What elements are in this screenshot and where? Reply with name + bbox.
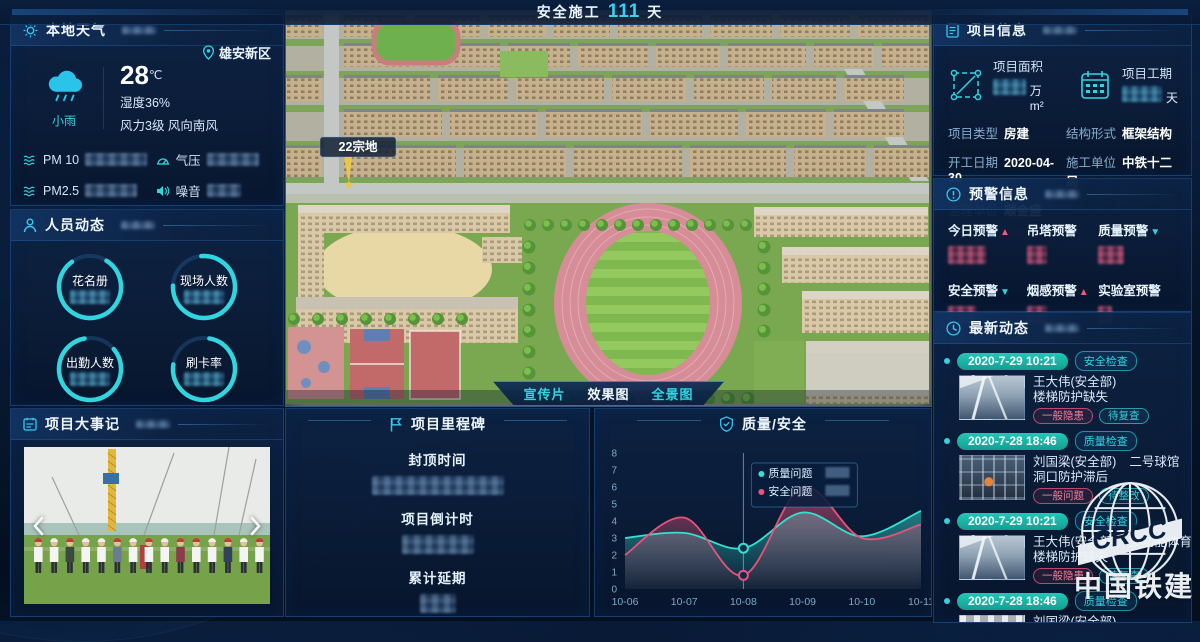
location-chip: 雄安新区 — [202, 43, 271, 62]
events-title: 项目大事记 — [45, 414, 120, 434]
redacted-value — [993, 79, 1026, 95]
svg-text:6: 6 — [611, 483, 617, 494]
redacted-value — [1098, 246, 1124, 264]
area-measure-icon — [948, 67, 984, 103]
view-mode-tabs: 宣传片 效果图 全景图 — [493, 381, 725, 405]
milestone-topping-time: 封顶时间 — [372, 449, 504, 495]
milestone-photo — [24, 447, 270, 604]
events-header: 项目大事记 — [11, 409, 283, 440]
personnel-title: 人员动态 — [45, 215, 105, 235]
inspector-name: 刘国梁(安全部) — [1033, 455, 1116, 469]
entry-time: 2020-7-28 18:46 — [957, 593, 1068, 610]
entry-time: 2020-7-29 10:21 — [957, 353, 1068, 370]
entry-type-badge: 质量检查 — [1075, 431, 1137, 451]
entry-time: 2020-7-29 10:21 — [957, 513, 1068, 530]
entry-time: 2020-7-28 18:46 — [957, 433, 1068, 450]
tab-promo-video[interactable]: 宣传片 — [523, 384, 565, 403]
bullet-icon — [944, 438, 950, 444]
gauge-onsite-count: 现场人数 — [168, 251, 240, 323]
redacted-text — [122, 26, 156, 34]
milestone-delay: 累计延期 — [409, 567, 467, 613]
severity-tag: 一般隐患 — [1033, 408, 1093, 424]
svg-text:10-06: 10-06 — [612, 596, 639, 608]
svg-text:7: 7 — [611, 466, 617, 477]
redacted-text — [1045, 190, 1079, 198]
location-pin-icon — [202, 45, 215, 60]
redacted-text — [121, 221, 155, 229]
svg-text:10-11: 10-11 — [908, 596, 931, 608]
location-label: 雄安新区 — [219, 43, 271, 62]
speaker-icon — [156, 185, 170, 197]
entry-location: 多功能体育馆 — [1129, 535, 1192, 549]
title-suffix: 天 — [647, 0, 663, 24]
stat-project-area: 项目面积 万m² — [948, 56, 1051, 113]
trend-down-icon: ▼ — [1150, 227, 1160, 238]
redacted-value — [207, 153, 259, 166]
issue-text: 洞口防护滞后 — [1033, 470, 1181, 485]
inspector-name: 王大伟(安全部) — [1033, 375, 1116, 389]
svg-text:3: 3 — [611, 534, 617, 545]
metric-pm25: PM2.5 — [23, 181, 156, 200]
severity-tag: 一般隐患 — [1033, 568, 1093, 584]
quality-safety-chart[interactable]: 01234567810-0610-0710-0810-0910-1010-11质… — [595, 441, 931, 613]
trend-down-icon: ▼ — [1000, 287, 1010, 298]
svg-text:安全问题: 安全问题 — [768, 484, 812, 498]
rain-cloud-icon — [41, 67, 87, 105]
svg-text:10-09: 10-09 — [789, 596, 816, 608]
entry-type-badge: 质量检查 — [1075, 591, 1137, 611]
humidity: 湿度36% — [120, 92, 218, 111]
bullet-icon — [944, 598, 950, 604]
page-title: 安全施工 111 天 — [537, 0, 664, 24]
redacted-value — [184, 290, 224, 304]
inspector-name: 刘国梁(安全部) — [1033, 615, 1116, 623]
personnel-panel: 人员动态 花名册 现场人数 出勤人数 刷卡率 — [10, 209, 284, 406]
trend-up-icon: ▲ — [1000, 227, 1010, 238]
field-project-type: 项目类型房建 — [948, 123, 1066, 142]
warning-quality: 质量预警▼ — [1098, 220, 1177, 264]
gauge-roster: 花名册 — [54, 251, 126, 323]
calendar-icon — [1077, 67, 1113, 103]
carousel-prev-button[interactable] — [30, 513, 46, 539]
milestone-header: 项目里程碑 — [286, 409, 589, 439]
svg-text:10-10: 10-10 — [848, 596, 875, 608]
personnel-header: 人员动态 — [11, 210, 283, 241]
inspection-photo — [959, 615, 1025, 623]
milestone-title: 项目里程碑 — [411, 414, 486, 434]
entry-location: 二号球馆 — [1129, 455, 1179, 469]
metric-pressure: 气压 — [156, 150, 271, 169]
haze-icon — [23, 154, 37, 166]
shield-check-icon — [719, 416, 734, 432]
safe-days-count: 111 — [608, 0, 641, 24]
update-entry[interactable]: 2020-7-29 10:21 安全检查 王大伟(安全部) 楼梯防护缺失 一般隐… — [944, 352, 1181, 424]
calendar-note-icon — [23, 417, 37, 431]
svg-text:2: 2 — [611, 551, 617, 562]
project-3d-view[interactable]: 22宗地 宣传片 效果图 全景图 — [285, 10, 932, 407]
entry-type-badge: 安全检查 — [1075, 511, 1137, 531]
status-tag: 待复查 — [1099, 408, 1149, 424]
svg-text:质量问题: 质量问题 — [768, 467, 812, 480]
svg-text:4: 4 — [611, 517, 617, 528]
redacted-value — [70, 290, 110, 304]
milestone-panel: 项目里程碑 封顶时间 项目倒计时 累计延期 — [285, 408, 590, 617]
carousel-next-button[interactable] — [248, 513, 264, 539]
events-panel: 项目大事记 — [10, 408, 284, 617]
haze-icon — [23, 185, 37, 197]
metric-pm10: PM 10 — [23, 150, 156, 169]
bullet-icon — [944, 518, 950, 524]
temperature: 28℃ — [120, 62, 218, 88]
redacted-value — [1027, 246, 1047, 264]
svg-text:0: 0 — [611, 585, 617, 596]
redacted-text — [1045, 324, 1079, 332]
wind: 风力3级 风向南风 — [120, 115, 218, 134]
weather-condition: 小雨 — [25, 112, 103, 129]
svg-text:1: 1 — [611, 568, 617, 579]
status-tag: 待复查 — [1099, 568, 1149, 584]
issue-text: 楼梯防护缺失 — [1033, 550, 1181, 565]
warning-header: 预警信息 — [934, 179, 1191, 210]
bullet-icon — [944, 358, 950, 364]
redacted-value — [207, 184, 241, 197]
redacted-value — [1122, 86, 1162, 102]
warning-crane: 吊塔预警 — [1027, 220, 1099, 264]
redacted-value — [184, 372, 224, 386]
weather-panel: 本地天气 雄安新区 小雨 28℃ 湿度36% 风力3级 风向南风 — [10, 14, 284, 206]
updates-panel: 最新动态 2020-7-29 10:21 安全检查 王大伟(安全部) 楼梯防护缺… — [933, 312, 1192, 623]
redacted-value — [85, 184, 137, 197]
svg-text:5: 5 — [611, 500, 617, 511]
redacted-text — [136, 420, 170, 428]
svg-text:8: 8 — [611, 449, 617, 460]
field-structure-form: 结构形式框架结构 — [1066, 123, 1177, 142]
campus-render: 22宗地 — [286, 11, 929, 404]
updates-title: 最新动态 — [969, 318, 1029, 338]
person-icon — [23, 218, 37, 233]
update-entry[interactable]: 2020-7-28 18:46 质量检查 刘国梁(安全部)二号球馆 洞口防护滞后… — [944, 432, 1181, 504]
update-entry[interactable]: 2020-7-28 18:46 质量检查 刘国梁(安全部) — [944, 592, 1181, 623]
redacted-value — [420, 594, 456, 613]
quality-title: 质量/安全 — [742, 414, 807, 434]
issue-text: 楼梯防护缺失 — [1033, 390, 1181, 405]
dashboard-root: 安全施工 111 天 22宗地 宣传片 效果图 全景图 本地天气 雄安新区 — [0, 0, 1200, 621]
gauge-card-swipe-rate: 刷卡率 — [168, 333, 240, 405]
quality-safety-panel: 质量/安全 01234567810-0610-0710-0810-0910-10… — [594, 408, 932, 617]
inspection-photo — [959, 455, 1025, 500]
severity-tag: 一般问题 — [1033, 488, 1093, 504]
metric-noise: 噪音 — [156, 181, 271, 200]
redacted-value — [85, 153, 147, 166]
warning-panel: 预警信息 今日预警▲ 吊塔预警 质量预警▼ 安全预警▼ 烟感预警▲ — [933, 178, 1192, 312]
svg-text:10-08: 10-08 — [730, 596, 757, 608]
stat-project-duration: 项目工期 天 — [1077, 56, 1178, 113]
entry-type-badge: 安全检查 — [1075, 351, 1137, 371]
warning-today: 今日预警▲ — [948, 220, 1027, 264]
status-tag: 待整改 — [1099, 488, 1149, 504]
warning-title: 预警信息 — [969, 184, 1029, 204]
inspection-photo — [959, 535, 1025, 580]
quality-header: 质量/安全 — [595, 409, 931, 439]
inspector-name: 王大伟(安全部) — [1033, 535, 1116, 549]
redacted-text — [1043, 26, 1077, 34]
redacted-value — [948, 246, 986, 264]
update-entry[interactable]: 2020-7-29 10:21 安全检查 王大伟(安全部)多功能体育馆 楼梯防护… — [944, 512, 1181, 584]
updates-header: 最新动态 — [934, 313, 1191, 344]
gauge-icon — [156, 154, 170, 166]
clock-icon — [946, 321, 961, 336]
tab-panorama[interactable]: 全景图 — [652, 384, 694, 403]
plot-label: 22宗地 — [339, 139, 378, 154]
milestone-countdown: 项目倒计时 — [401, 508, 474, 554]
title-prefix: 安全施工 — [537, 0, 601, 24]
inspection-photo — [959, 375, 1025, 420]
trend-up-icon: ▲ — [1079, 287, 1089, 298]
alarm-icon — [946, 187, 961, 202]
page-header: 安全施工 111 天 — [0, 0, 1200, 25]
gauge-attendance-count: 出勤人数 — [54, 333, 126, 405]
redacted-value — [70, 372, 110, 386]
redacted-value — [402, 535, 474, 554]
project-info-panel: 项目信息 项目面积 万m² 项目工期 天 — [933, 14, 1192, 176]
tab-render-view[interactable]: 效果图 — [587, 384, 629, 403]
svg-text:10-07: 10-07 — [671, 596, 698, 608]
flag-icon — [389, 417, 403, 432]
redacted-value — [372, 476, 504, 495]
